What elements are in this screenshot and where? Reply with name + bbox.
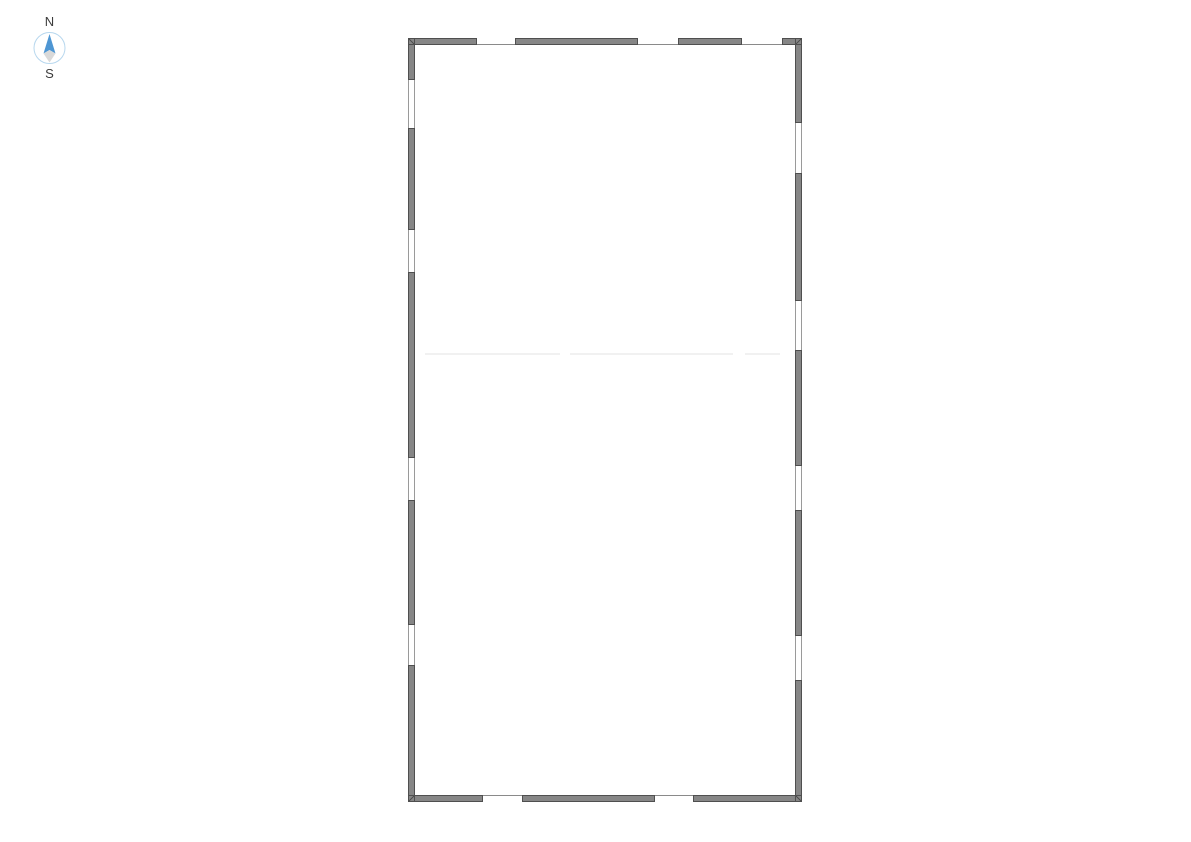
faint-guide-line	[425, 353, 560, 355]
wall-segment[interactable]	[408, 665, 415, 802]
wall-opening[interactable]	[638, 38, 678, 45]
wall-corner-miter	[408, 795, 415, 802]
wall-segment[interactable]	[408, 500, 415, 625]
wall-segment[interactable]	[795, 350, 802, 466]
wall-segment[interactable]	[408, 38, 477, 45]
window[interactable]	[795, 466, 802, 510]
faint-guide-line	[570, 353, 733, 355]
compass-needle-icon	[0, 0, 100, 100]
window[interactable]	[795, 123, 802, 173]
wall-segment[interactable]	[693, 795, 802, 802]
wall-segment[interactable]	[515, 38, 638, 45]
wall-segment[interactable]	[795, 510, 802, 636]
wall-segment[interactable]	[678, 38, 742, 45]
wall-segment[interactable]	[408, 128, 415, 230]
window[interactable]	[408, 80, 415, 128]
wall-opening[interactable]	[477, 38, 515, 45]
window[interactable]	[795, 636, 802, 680]
window[interactable]	[408, 458, 415, 500]
wall-corner-miter	[795, 38, 802, 45]
window[interactable]	[795, 301, 802, 350]
compass-south-label: S	[0, 67, 99, 81]
room-floor[interactable]	[415, 45, 795, 795]
floor-plan-canvas: N S	[0, 0, 1191, 842]
wall-segment[interactable]	[408, 795, 483, 802]
wall-segment[interactable]	[795, 173, 802, 301]
wall-opening[interactable]	[742, 38, 782, 45]
wall-segment[interactable]	[408, 272, 415, 458]
wall-segment[interactable]	[795, 680, 802, 802]
wall-opening[interactable]	[655, 795, 693, 802]
wall-corner-miter	[795, 795, 802, 802]
window[interactable]	[408, 625, 415, 665]
wall-opening[interactable]	[483, 795, 522, 802]
window[interactable]	[408, 230, 415, 272]
wall-segment[interactable]	[795, 38, 802, 123]
wall-corner-miter	[408, 38, 415, 45]
faint-guide-line	[745, 353, 780, 355]
wall-segment[interactable]	[522, 795, 655, 802]
